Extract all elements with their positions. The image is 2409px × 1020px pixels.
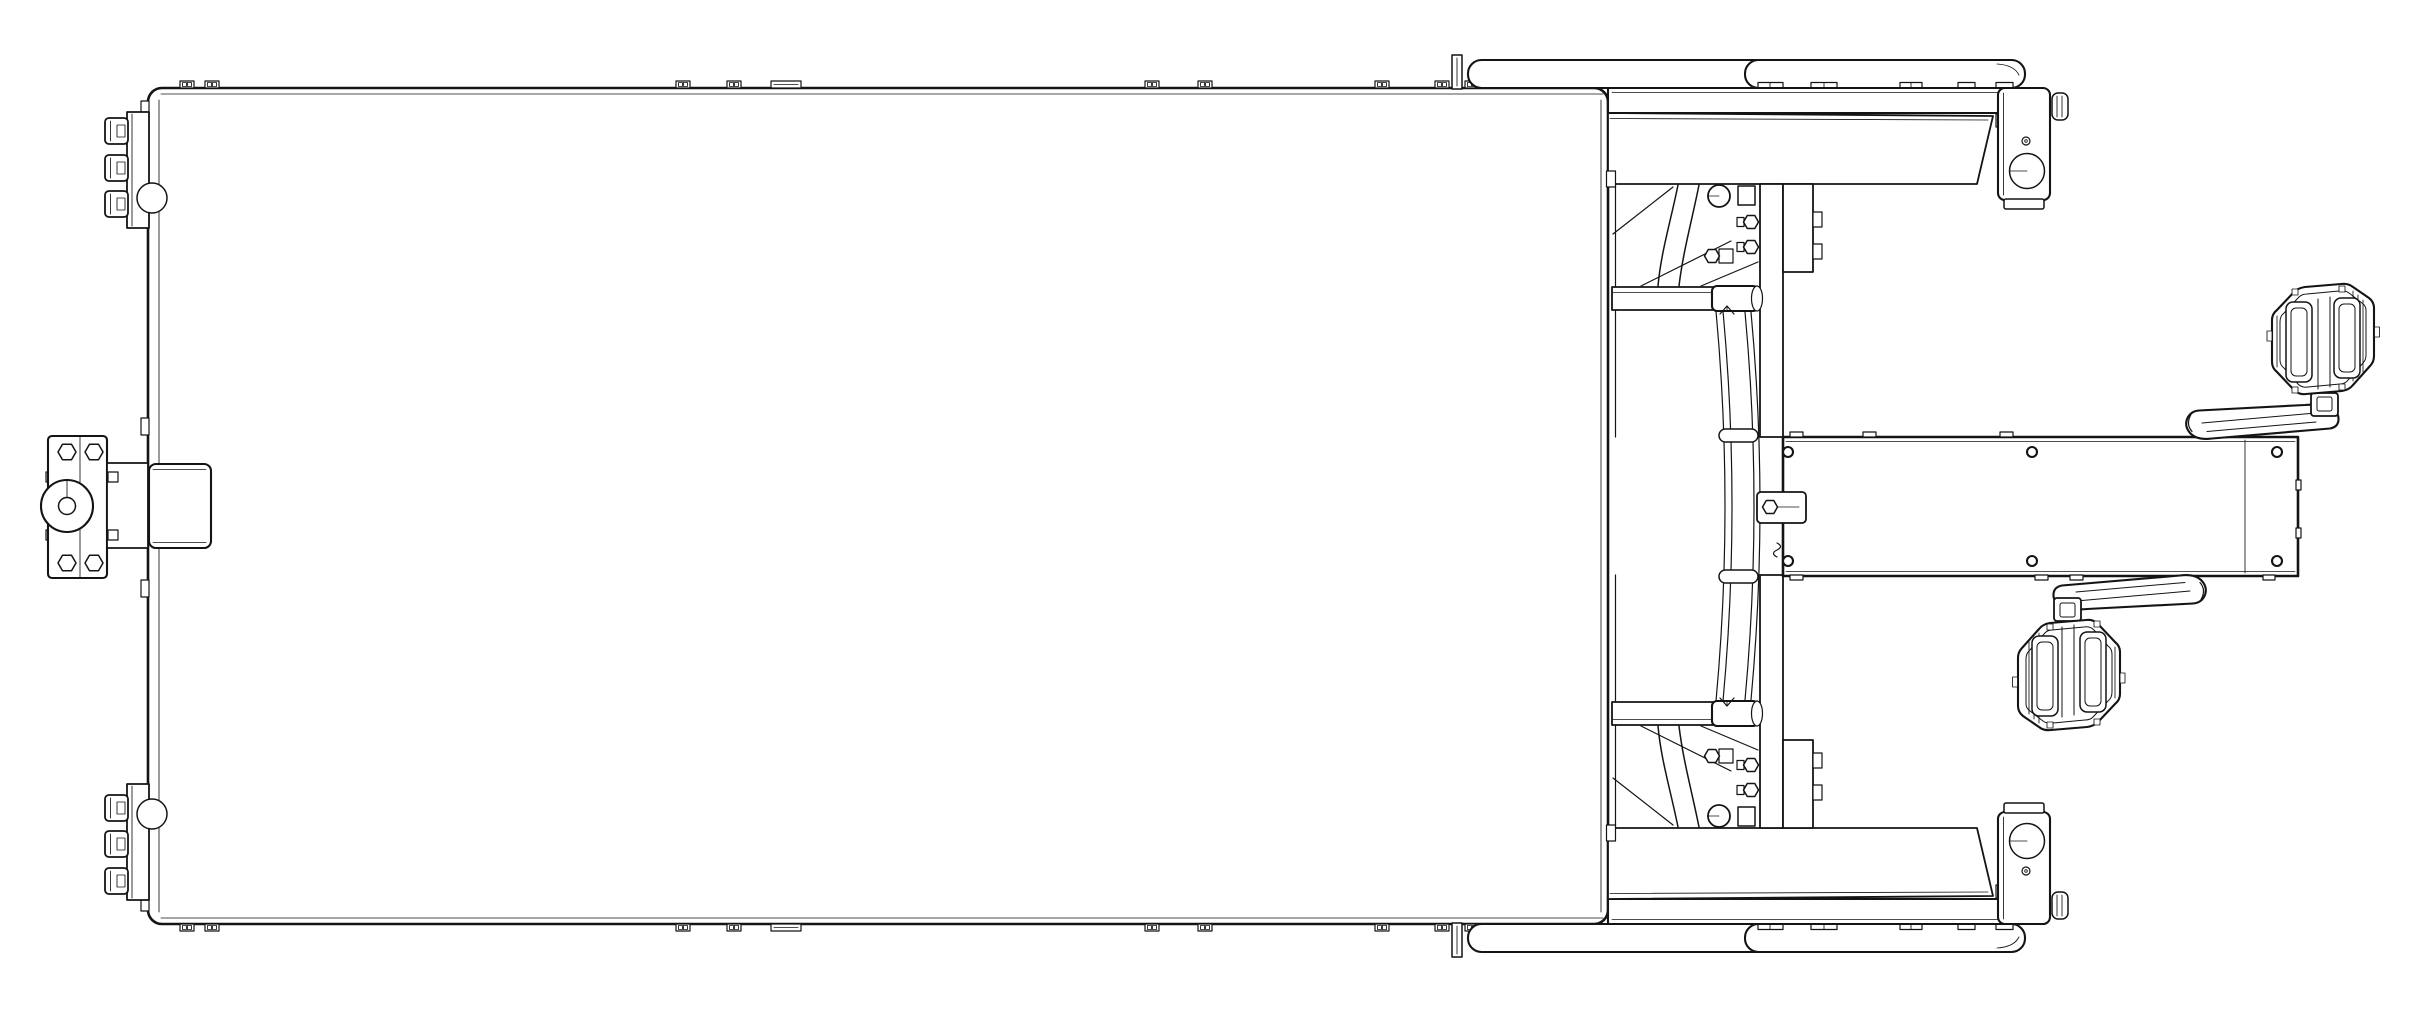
drawing-canvas <box>0 0 2409 1020</box>
drive-boom <box>1757 432 2301 580</box>
technical-drawing <box>0 0 2409 1020</box>
cargo-deck <box>148 88 1608 924</box>
